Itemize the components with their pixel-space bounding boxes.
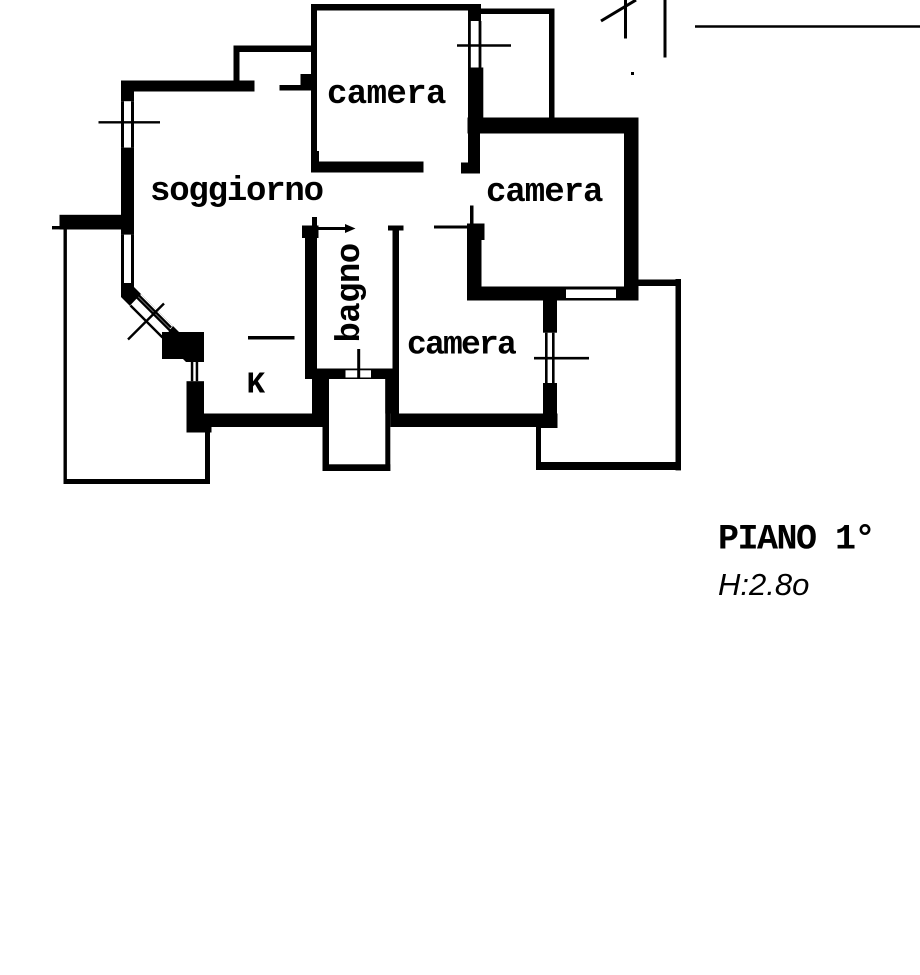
svg-text:H:2.8o: H:2.8o	[718, 567, 809, 602]
svg-text:camera: camera	[407, 327, 516, 364]
svg-text:bagno: bagno	[332, 243, 370, 342]
svg-text:camera: camera	[486, 174, 603, 212]
svg-text:PIANO 1°: PIANO 1°	[718, 520, 874, 560]
svg-text:K: K	[247, 368, 266, 403]
svg-text:soggiorno: soggiorno	[150, 173, 323, 211]
svg-text:camera: camera	[327, 76, 446, 114]
